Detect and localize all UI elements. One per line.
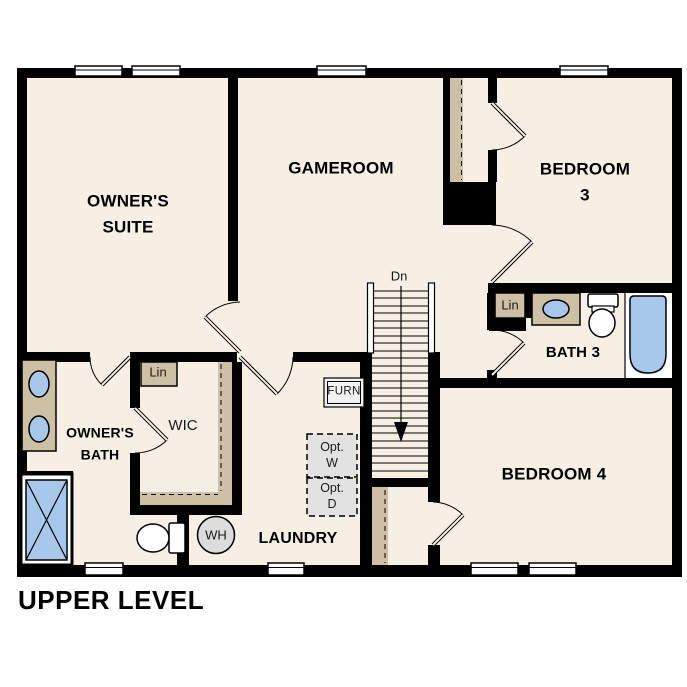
owners-bath-label: OWNER'S BATH bbox=[66, 422, 134, 467]
vanity-sink-icon bbox=[29, 371, 49, 397]
window-owners-bath bbox=[85, 563, 123, 575]
stair-rail-right bbox=[429, 283, 435, 353]
wall-bedroom3-west-upper bbox=[488, 68, 497, 103]
water-heater-label: WH bbox=[205, 525, 227, 545]
window-laundry bbox=[268, 563, 304, 575]
wall-bedroom3-west-mid bbox=[488, 150, 497, 182]
laundry-label: LAUNDRY bbox=[258, 527, 337, 551]
optional-washer-label: Opt. W bbox=[320, 439, 344, 472]
bath3-linen-label: Lin bbox=[501, 295, 518, 315]
under-stair-wall bbox=[372, 487, 388, 565]
stair-rail-left bbox=[368, 283, 374, 353]
wic-shelf-east bbox=[218, 362, 232, 492]
wall-east bbox=[672, 68, 682, 577]
window-bedroom3 bbox=[560, 66, 608, 76]
toilet-tank-icon bbox=[588, 294, 618, 307]
furnace-label: FURN bbox=[327, 383, 360, 400]
window-bedroom4-2 bbox=[529, 563, 576, 575]
wic-label: WIC bbox=[168, 415, 197, 438]
window-owners-suite-1 bbox=[75, 66, 122, 76]
stairs-down-label: Dn bbox=[391, 266, 408, 286]
optional-dryer-label: Opt. D bbox=[320, 480, 344, 513]
wall-bedroom4-west-stub bbox=[428, 545, 440, 568]
wall-wic-west-upper bbox=[130, 362, 140, 408]
toilet-tank-icon bbox=[169, 523, 185, 553]
window-gameroom bbox=[317, 66, 366, 76]
wic-shelf-south bbox=[140, 492, 232, 505]
wall-bedroom4-north bbox=[440, 378, 682, 388]
bath3-label: BATH 3 bbox=[546, 342, 600, 365]
wall-stair-bottom bbox=[360, 478, 440, 487]
vanity-sink-icon bbox=[29, 416, 49, 442]
wall-wic-east bbox=[232, 362, 242, 515]
gameroom-label: GAMEROOM bbox=[288, 155, 393, 181]
owners-suite-label: OWNER'S SUITE bbox=[87, 189, 169, 242]
wall-suite-south-east bbox=[130, 352, 237, 362]
wall-chase-west bbox=[443, 68, 450, 182]
wic-linen-label: Lin bbox=[149, 362, 166, 382]
floor-plan: OWNER'S SUITE GAMEROOM BEDROOM 3 BATH 3 … bbox=[0, 0, 687, 687]
bedroom4-label: BEDROOM 4 bbox=[502, 461, 607, 487]
bedroom3-label: BEDROOM 3 bbox=[534, 157, 636, 208]
chase-solid-block bbox=[443, 182, 496, 225]
plan-title: UPPER LEVEL bbox=[18, 585, 204, 616]
wall-bath3-linen-east bbox=[525, 293, 532, 318]
toilet-bowl-icon bbox=[589, 309, 615, 337]
wall-bath3-north bbox=[488, 283, 682, 293]
wall-bath3-linen-south bbox=[489, 318, 526, 331]
toilet-bowl-icon bbox=[137, 524, 169, 552]
wall-suite-east bbox=[228, 68, 238, 301]
window-bedroom4-1 bbox=[471, 563, 518, 575]
vanity-sink-icon bbox=[543, 300, 569, 318]
window-owners-suite-2 bbox=[132, 66, 180, 76]
bathtub-icon bbox=[630, 296, 666, 373]
